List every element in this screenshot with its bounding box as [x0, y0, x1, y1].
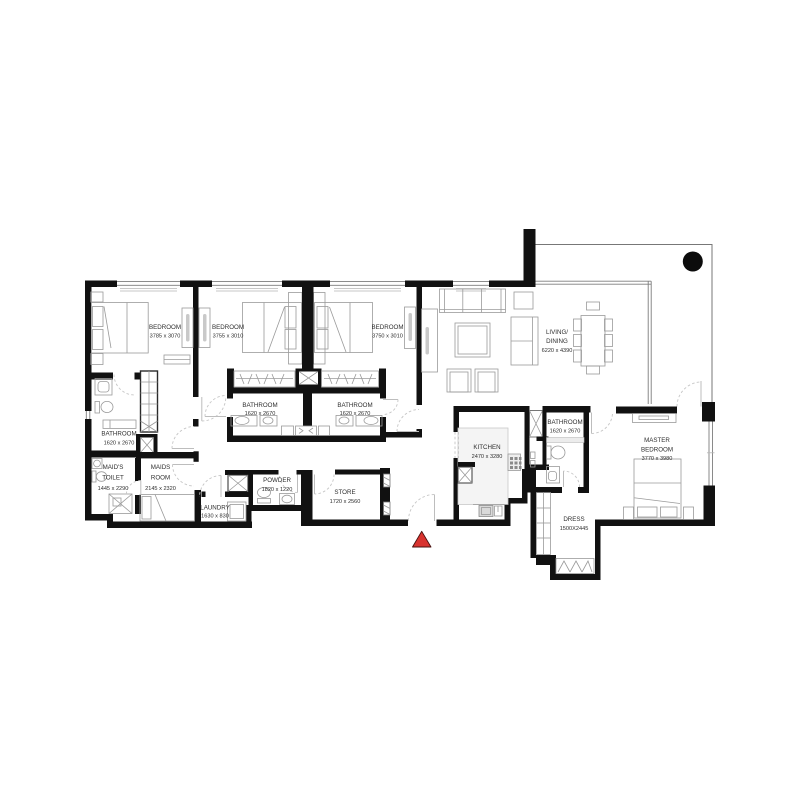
svg-text:MAID'S: MAID'S — [103, 464, 124, 471]
svg-text:1620 x 2670: 1620 x 2670 — [104, 441, 135, 447]
svg-text:KITCHEN: KITCHEN — [473, 444, 500, 451]
svg-text:MAIDS: MAIDS — [151, 464, 171, 471]
svg-text:1620 x 2670: 1620 x 2670 — [245, 411, 276, 417]
svg-text:1720 x 2560: 1720 x 2560 — [330, 499, 361, 505]
svg-text:3755 x 3010: 3755 x 3010 — [213, 334, 244, 340]
svg-text:1620 x 2670: 1620 x 2670 — [340, 411, 371, 417]
svg-text:LIVING/: LIVING/ — [546, 329, 568, 336]
svg-text:3785 x 3070: 3785 x 3070 — [150, 334, 181, 340]
svg-text:1445 x 2290: 1445 x 2290 — [98, 486, 129, 492]
svg-text:6220 x 4390: 6220 x 4390 — [542, 348, 573, 354]
svg-text:3750 x 3010: 3750 x 3010 — [372, 334, 403, 340]
svg-text:POWDER: POWDER — [263, 477, 291, 484]
svg-text:BEDROOM: BEDROOM — [641, 447, 673, 454]
svg-text:DINING: DINING — [546, 338, 568, 345]
svg-text:BEDROOM: BEDROOM — [149, 324, 181, 331]
svg-text:1630 x 830: 1630 x 830 — [201, 514, 229, 520]
svg-text:BATHROOM: BATHROOM — [547, 419, 582, 426]
svg-text:DRESS: DRESS — [563, 516, 584, 523]
svg-text:1620 x 2670: 1620 x 2670 — [550, 429, 581, 435]
svg-text:BEDROOM: BEDROOM — [372, 324, 404, 331]
svg-text:2470 x 3280: 2470 x 3280 — [472, 454, 503, 460]
svg-text:BATHROOM: BATHROOM — [337, 402, 372, 409]
svg-text:TOILET: TOILET — [102, 475, 124, 482]
svg-text:STORE: STORE — [334, 489, 355, 496]
svg-text:LAUNDRY: LAUNDRY — [200, 505, 229, 512]
svg-text:1820 x 1220: 1820 x 1220 — [262, 487, 293, 493]
svg-text:3770 x 3980: 3770 x 3980 — [642, 456, 673, 462]
svg-text:1500X2445: 1500X2445 — [560, 526, 589, 532]
svg-text:MASTER: MASTER — [644, 437, 670, 444]
svg-text:2145 x 2320: 2145 x 2320 — [145, 486, 176, 492]
svg-text:BATHROOM: BATHROOM — [242, 402, 277, 409]
svg-text:BATHROOM: BATHROOM — [101, 431, 136, 438]
svg-text:BEDROOM: BEDROOM — [212, 324, 244, 331]
svg-text:ROOM: ROOM — [151, 475, 170, 482]
